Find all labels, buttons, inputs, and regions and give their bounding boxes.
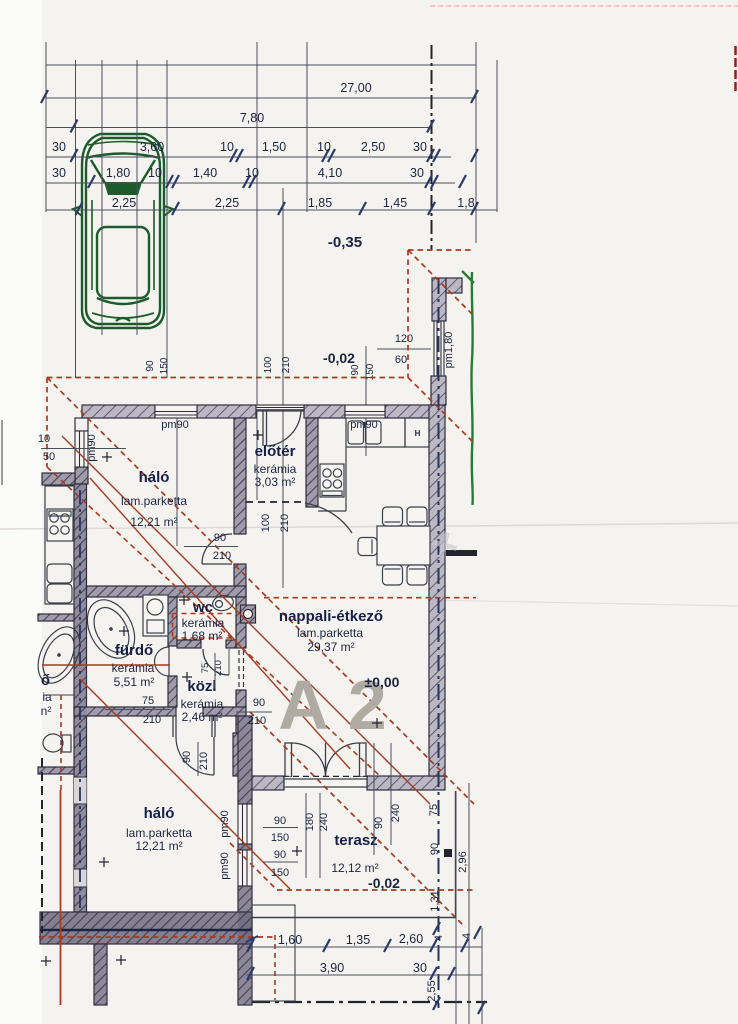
svg-text:n²: n² [41, 704, 52, 718]
svg-text:50: 50 [43, 451, 55, 463]
svg-text:pm90: pm90 [161, 419, 189, 431]
svg-text:210: 210 [143, 714, 161, 726]
svg-text:ő: ő [41, 672, 50, 689]
svg-text:29,37 m²: 29,37 m² [307, 640, 354, 654]
svg-text:100: 100 [263, 356, 274, 373]
svg-text:lam.parketta: lam.parketta [121, 494, 187, 508]
svg-text:fürdő: fürdő [115, 642, 153, 659]
svg-text:2,60: 2,60 [399, 932, 423, 946]
svg-text:150: 150 [271, 867, 289, 879]
svg-text:10: 10 [38, 433, 50, 445]
svg-text:H: H [415, 429, 421, 438]
svg-text:1,31: 1,31 [429, 890, 441, 911]
svg-text:1,60: 1,60 [278, 933, 302, 947]
svg-text:10: 10 [245, 166, 259, 180]
svg-text:210: 210 [281, 356, 292, 373]
svg-text:75: 75 [200, 663, 211, 674]
svg-text:210: 210 [198, 752, 210, 770]
svg-text:pm90: pm90 [219, 852, 231, 880]
svg-text:2,25: 2,25 [112, 196, 136, 210]
svg-text:kerámia: kerámia [182, 616, 225, 630]
svg-text:1,80: 1,80 [106, 166, 130, 180]
svg-text:2,46 m²: 2,46 m² [182, 710, 223, 724]
svg-text:30: 30 [52, 166, 66, 180]
svg-text:±0,00: ±0,00 [365, 674, 400, 690]
svg-text:12,12 m²: 12,12 m² [331, 861, 378, 875]
svg-text:-0,02: -0,02 [368, 875, 400, 891]
svg-text:3,90: 3,90 [320, 961, 344, 975]
svg-text:közl: közl [187, 678, 216, 695]
svg-text:pm90: pm90 [350, 419, 378, 431]
svg-text:90: 90 [214, 532, 226, 544]
svg-text:120: 120 [395, 333, 413, 345]
svg-text:4: 4 [461, 933, 473, 939]
svg-text:1,40: 1,40 [193, 166, 217, 180]
svg-text:100: 100 [260, 514, 272, 532]
svg-text:240: 240 [390, 804, 402, 822]
svg-text:30: 30 [52, 140, 66, 154]
svg-text:1,45: 1,45 [383, 196, 407, 210]
svg-text:1,35: 1,35 [346, 933, 370, 947]
svg-text:240: 240 [318, 813, 330, 831]
svg-text:ia: ia [42, 690, 52, 704]
svg-text:7,80: 7,80 [240, 111, 264, 125]
svg-text:nappali-étkező: nappali-étkező [279, 608, 383, 625]
svg-text:210: 210 [279, 514, 291, 532]
svg-text:előtér: előtér [255, 443, 296, 460]
svg-text:90: 90 [145, 360, 156, 372]
svg-text:90: 90 [429, 843, 441, 855]
svg-text:1,8: 1,8 [457, 196, 474, 210]
svg-text:60: 60 [395, 354, 407, 366]
svg-text:lam.parketta: lam.parketta [297, 626, 363, 640]
svg-text:pm1,80: pm1,80 [443, 332, 455, 369]
svg-text:5,51 m²: 5,51 m² [114, 675, 155, 689]
svg-text:12,21 m²: 12,21 m² [135, 839, 182, 853]
svg-text:kerámia: kerámia [254, 462, 297, 476]
svg-text:12,21 m²: 12,21 m² [130, 515, 177, 529]
svg-text:90: 90 [274, 815, 286, 827]
svg-text:90: 90 [181, 751, 193, 763]
svg-text:1,50: 1,50 [262, 140, 286, 154]
svg-text:90: 90 [253, 697, 265, 709]
svg-text:2,96: 2,96 [457, 851, 469, 872]
svg-text:30: 30 [413, 140, 427, 154]
svg-text:10: 10 [220, 140, 234, 154]
svg-text:90: 90 [274, 849, 286, 861]
svg-text:lam.parketta: lam.parketta [126, 826, 192, 840]
svg-text:30: 30 [410, 166, 424, 180]
svg-text:27,00: 27,00 [340, 81, 371, 95]
svg-text:75: 75 [142, 695, 154, 707]
svg-text:150: 150 [159, 357, 170, 374]
svg-text:75: 75 [428, 804, 440, 816]
svg-text:-0,35: -0,35 [328, 234, 362, 251]
svg-text:kerámia: kerámia [181, 697, 224, 711]
svg-text:210: 210 [213, 550, 231, 562]
svg-text:30: 30 [413, 961, 427, 975]
svg-text:háló: háló [144, 805, 175, 822]
svg-text:2,55: 2,55 [426, 980, 438, 1001]
svg-text:háló: háló [139, 469, 170, 486]
svg-text:210: 210 [248, 715, 266, 727]
svg-text:pm90: pm90 [219, 810, 231, 838]
svg-text:3,03 m²: 3,03 m² [255, 475, 296, 489]
svg-text:90: 90 [373, 817, 385, 829]
svg-text:1,85: 1,85 [308, 196, 332, 210]
svg-text:1,68 m²: 1,68 m² [182, 629, 223, 643]
svg-text:180: 180 [304, 813, 316, 831]
svg-text:terasz: terasz [334, 832, 377, 849]
svg-text:4,10: 4,10 [318, 166, 342, 180]
svg-text:90: 90 [350, 364, 361, 376]
svg-text:10: 10 [148, 166, 162, 180]
svg-text:kerámia: kerámia [112, 661, 155, 675]
svg-text:4: 4 [433, 935, 445, 941]
svg-text:-0,02: -0,02 [323, 350, 355, 366]
svg-text:2,25: 2,25 [215, 196, 239, 210]
svg-text:wc: wc [192, 599, 213, 616]
svg-text:150: 150 [271, 832, 289, 844]
svg-text:10: 10 [317, 140, 331, 154]
svg-text:3,60: 3,60 [140, 140, 164, 154]
svg-text:2,50: 2,50 [361, 140, 385, 154]
